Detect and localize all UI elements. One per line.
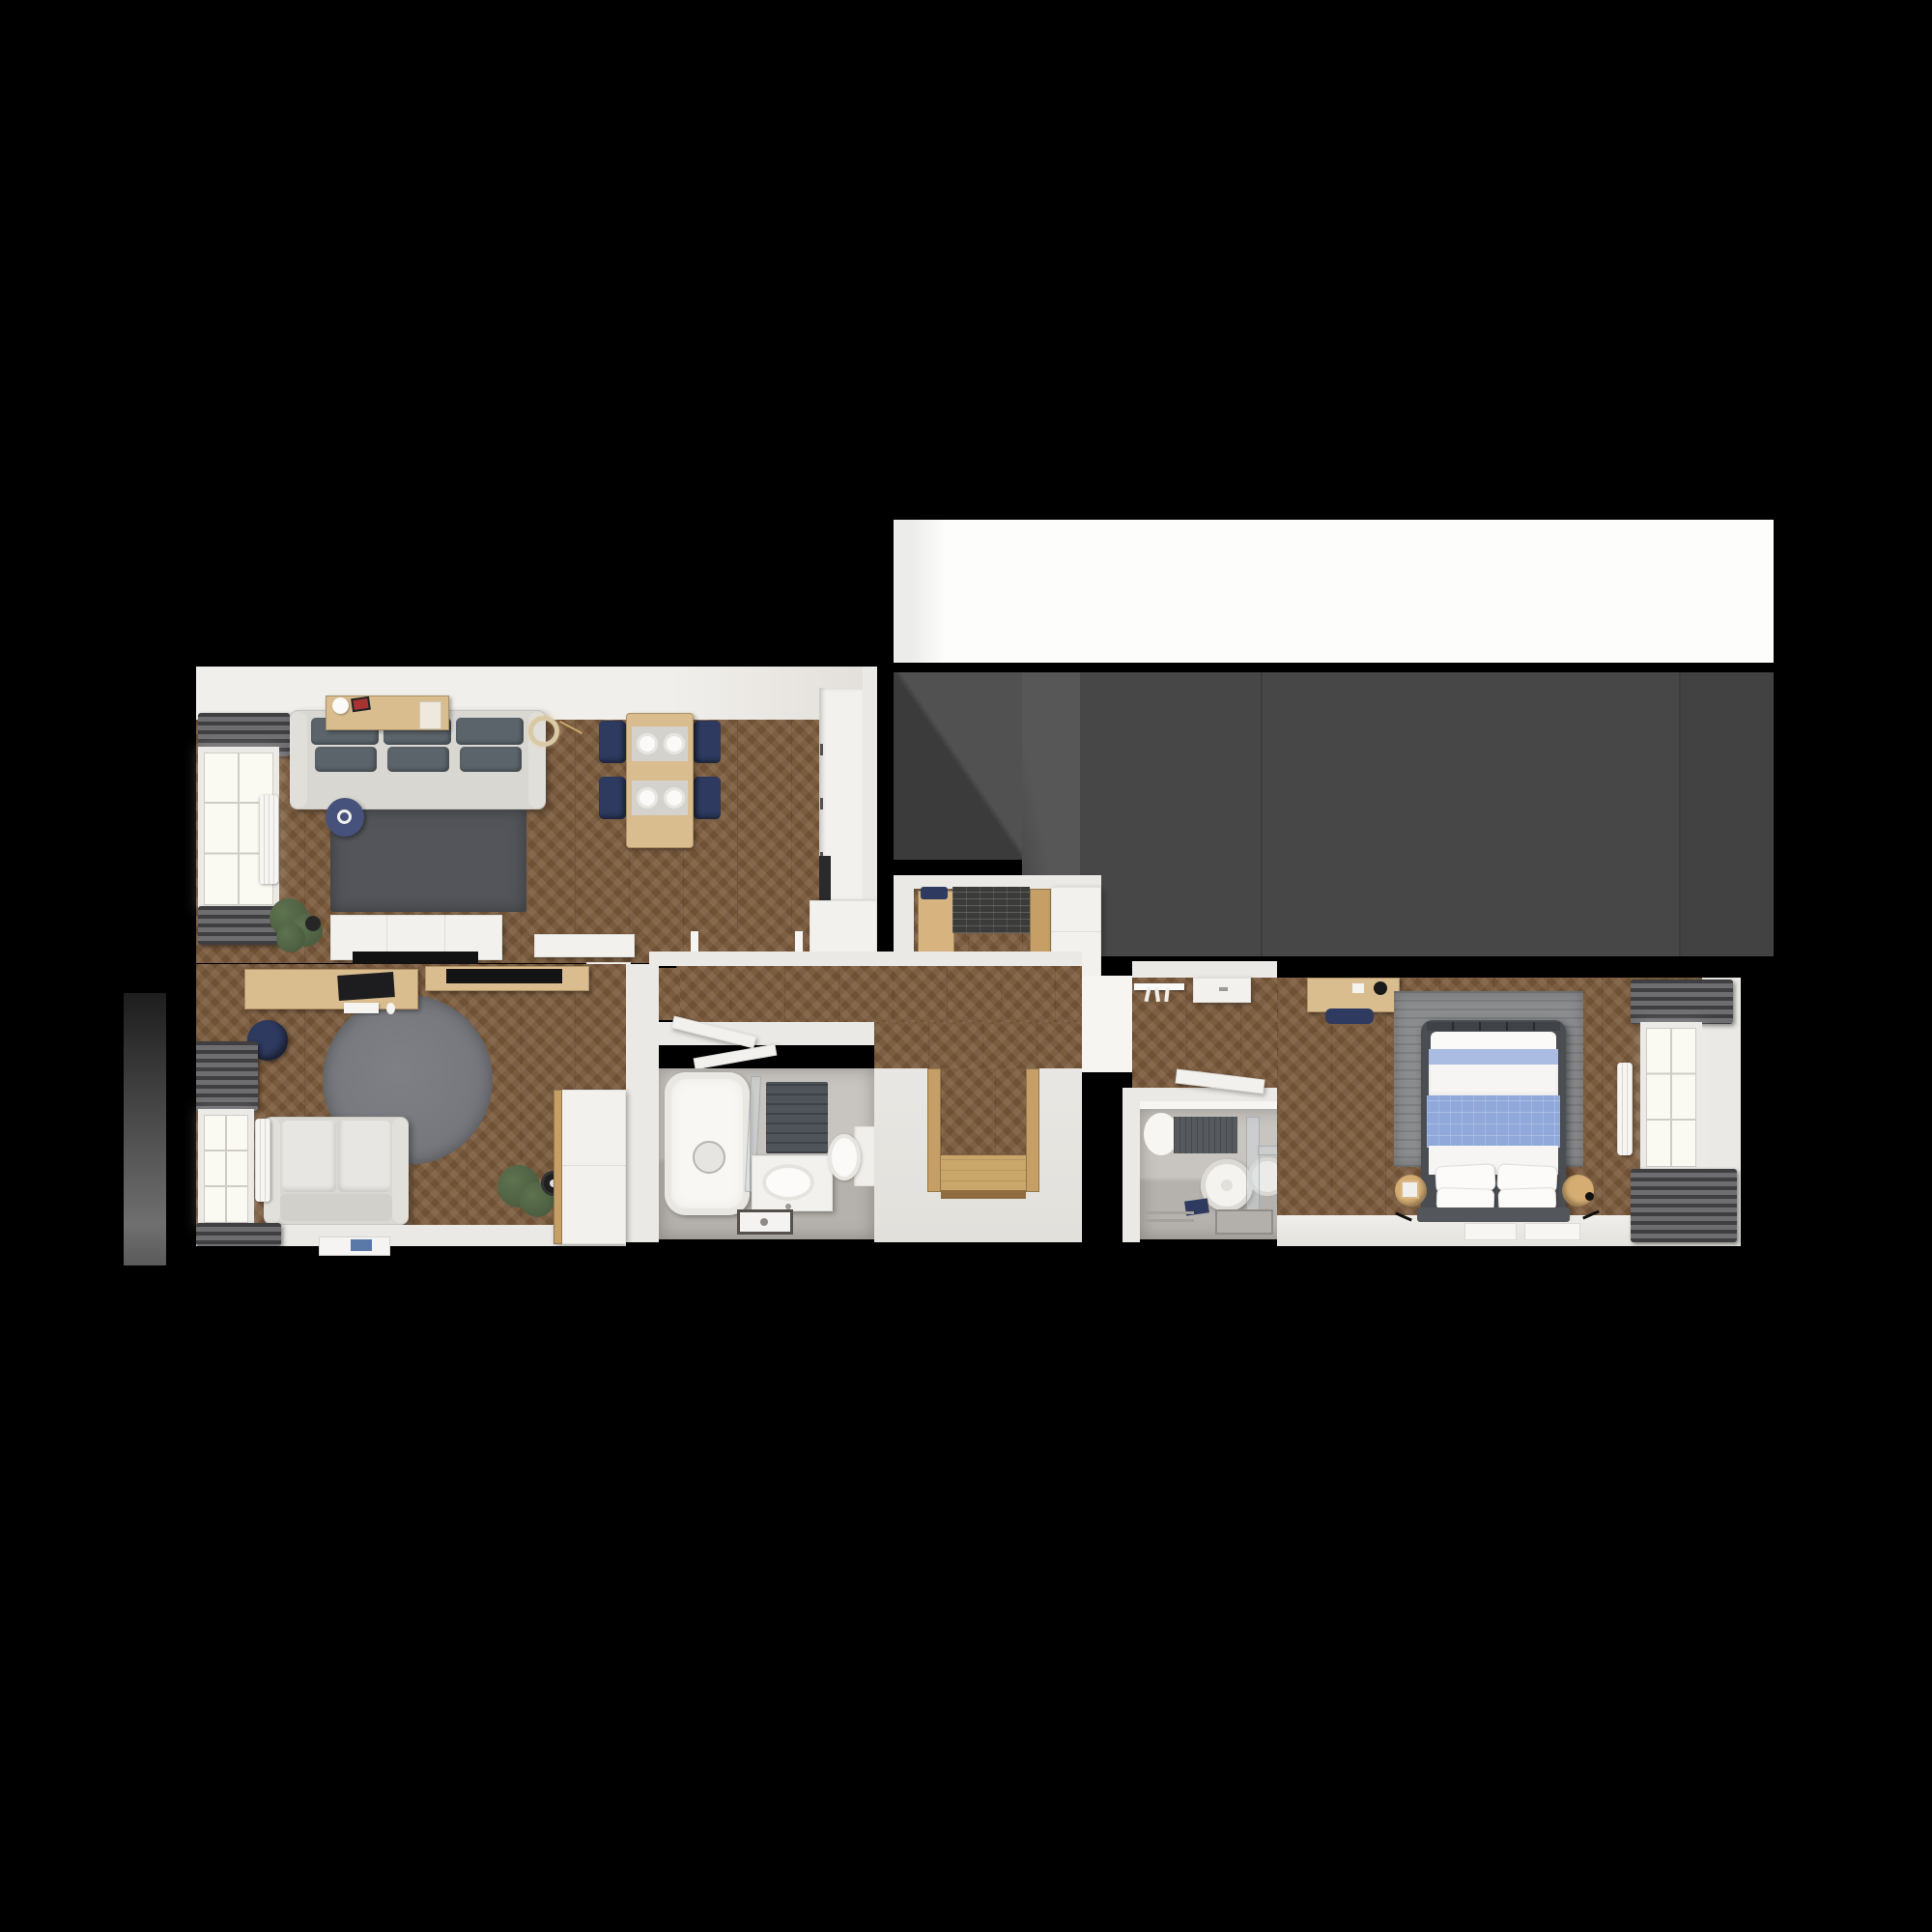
round-mirror — [693, 1141, 725, 1174]
office-east-wall — [626, 964, 659, 1020]
roof-edge-shade — [1681, 672, 1774, 956]
toilet-bowl — [828, 1134, 861, 1180]
bathroom-door-leaf — [694, 1044, 778, 1070]
entry-niche-wall — [927, 1068, 941, 1192]
sofa-cushion — [456, 718, 524, 745]
entry-bench — [918, 891, 954, 960]
living-room-radiator — [259, 795, 278, 884]
kitchen-handle — [820, 744, 823, 755]
corridor-floor-west — [676, 966, 1082, 1022]
corridor-north-band — [649, 952, 1082, 966]
plate — [664, 787, 685, 809]
decor-red-book — [353, 698, 368, 710]
entry-door-threshold — [941, 1190, 1026, 1199]
roof-section-left — [894, 672, 1022, 860]
corridor-floor-center — [874, 1022, 1082, 1068]
towel-dark — [766, 1082, 828, 1153]
plate — [637, 787, 658, 809]
bed-blue-blanket — [1427, 1095, 1560, 1148]
reading-lamp — [1585, 1192, 1594, 1201]
magazine-cover — [351, 1239, 372, 1251]
coat-rail — [1134, 983, 1184, 990]
shoe-mat — [952, 887, 1030, 933]
decor-poster — [419, 701, 441, 729]
headphones — [337, 810, 352, 824]
ensuite-wall-mat — [1174, 1117, 1237, 1153]
sofa-cushion — [315, 747, 377, 772]
roof-seam — [1261, 672, 1263, 956]
bedroom-radiator — [1617, 1063, 1633, 1155]
desk-lamp — [1374, 981, 1387, 995]
bathroom-west-wall — [626, 1020, 659, 1242]
bedroom-curtain-bottom — [1631, 1169, 1737, 1242]
plate — [637, 733, 658, 754]
kitchen-return-cabinet — [810, 900, 877, 958]
tv — [353, 952, 478, 964]
office-curtain-bottom — [196, 1223, 281, 1246]
passage-threshold — [1082, 976, 1132, 1072]
sofa-armrest — [290, 712, 307, 808]
keyboard — [344, 1003, 379, 1013]
roof-section-main — [1080, 672, 1774, 956]
bench-cushion — [921, 887, 948, 899]
plant-pot — [305, 916, 321, 931]
shower-floor-tray — [1215, 1209, 1273, 1235]
dining-chair — [599, 721, 626, 763]
loveseat-armrest — [392, 1119, 409, 1223]
bed-duvet-upper — [1429, 1065, 1558, 1097]
book-on-floor — [1524, 1223, 1580, 1240]
kitchen-handle — [820, 798, 823, 810]
entry-niche-wall — [1026, 1068, 1039, 1192]
oven-appliance — [819, 856, 831, 900]
loveseat-backrest — [280, 1194, 392, 1221]
floor-plan-render — [0, 0, 1932, 1932]
dining-chair — [694, 721, 721, 763]
low-cabinet — [534, 934, 635, 957]
towel-rail — [1146, 1211, 1194, 1214]
plant — [276, 923, 305, 952]
washbasin — [762, 1164, 814, 1201]
office-curtain-top — [196, 1041, 258, 1111]
office-wardrobe-wood-edge — [554, 1090, 562, 1244]
plate — [664, 733, 685, 754]
entry-niche-upper-floor — [941, 1068, 1026, 1155]
loveseat-cushion — [282, 1121, 336, 1192]
entry-niche-floor — [941, 1155, 1026, 1192]
desk-pad — [1352, 983, 1364, 993]
office-wardrobe — [554, 1090, 626, 1244]
bed-footboard-bench — [1417, 1207, 1570, 1222]
nightstand-cylinder — [1562, 1175, 1594, 1207]
nightstand-lamp-shade — [1401, 1180, 1419, 1199]
office-window — [198, 1109, 254, 1229]
book-on-floor — [1464, 1223, 1517, 1240]
corridor-east-north-band — [1132, 961, 1277, 978]
dining-chair — [599, 777, 626, 819]
bedroom-desk-chair — [1325, 1009, 1374, 1024]
dining-chair — [694, 777, 721, 819]
terrace-white-roof — [894, 520, 1774, 663]
bed-headboard — [1427, 1022, 1560, 1031]
mouse — [386, 1003, 395, 1014]
sofa-cushion — [387, 747, 449, 772]
pendant-lamp — [528, 716, 559, 747]
office-tv — [446, 969, 562, 983]
office-radiator — [255, 1119, 270, 1202]
towel-rail — [1146, 1219, 1194, 1222]
ensuite-west-wall — [1122, 1109, 1140, 1242]
door-handle — [1219, 987, 1228, 991]
loveseat-cushion — [338, 1121, 390, 1192]
basin-drain — [1221, 1179, 1233, 1191]
bedroom-window — [1640, 1022, 1702, 1173]
drain-dot — [760, 1218, 768, 1226]
neighbour-wall-shadow — [124, 993, 166, 1265]
sofa-cushion — [460, 747, 522, 772]
bedroom-curtain-top — [1631, 980, 1733, 1024]
decor-sphere-lamp — [332, 697, 349, 714]
monitor — [337, 972, 395, 1001]
